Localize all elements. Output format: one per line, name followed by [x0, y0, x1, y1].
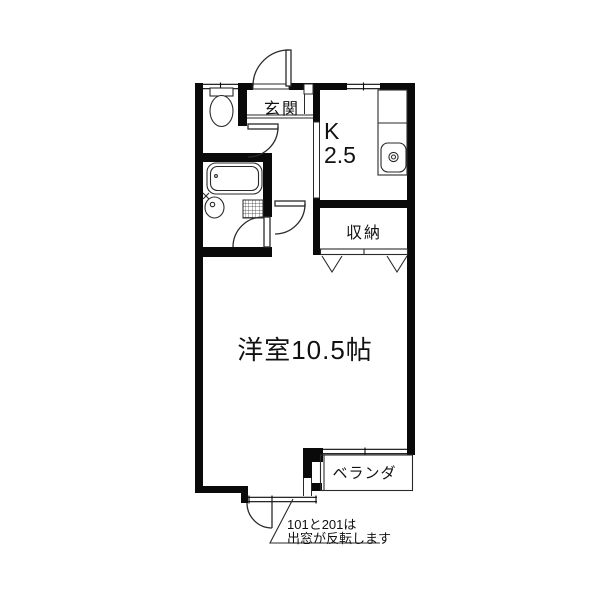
genkan-label: 玄関 [247, 95, 317, 119]
veranda-window [323, 448, 407, 456]
wall-segment [238, 83, 247, 126]
closet-doors [321, 249, 408, 272]
bathroom-door-swing [233, 217, 270, 247]
toilet-door-swing [248, 124, 278, 157]
windows [203, 83, 407, 504]
kitchen-label: K [324, 118, 339, 145]
kitchen-window [347, 83, 380, 91]
floor-plan-drawing [0, 0, 600, 600]
washbasin-icon [203, 193, 224, 218]
note-line2: 出窓が反転します [287, 528, 391, 547]
wall-segment [241, 486, 248, 503]
kitchen-size-label: 2.5 [324, 142, 356, 169]
wall-segment [195, 486, 248, 493]
kitchen-opening [314, 122, 320, 198]
wall-niche [304, 84, 313, 94]
entrance-threshold [253, 84, 289, 89]
washing-machine-pan-icon [243, 200, 263, 218]
wall-segment [407, 83, 415, 455]
storage-label: 収納 [320, 219, 408, 243]
main-room-label: 洋室10.5帖 [195, 330, 415, 367]
floor-plan-page: 玄関 K 2.5 収納 洋室10.5帖 ベランダ 101と201は 出窓が反転し… [0, 0, 600, 600]
wall-segment [313, 200, 415, 208]
kitchen-counter [378, 90, 407, 175]
fixtures [203, 88, 413, 491]
wall-segment [303, 448, 312, 478]
wall-segment [195, 83, 203, 493]
wall-segment [195, 247, 272, 257]
toilet-icon [210, 88, 233, 127]
wall-segment [263, 153, 272, 217]
bathtub-icon [207, 163, 262, 194]
main-room-door-swing [275, 201, 305, 234]
bay-window [248, 496, 317, 504]
openings [247, 84, 320, 496]
veranda-label: ベランダ [321, 462, 408, 483]
entrance-door-swing [253, 50, 291, 86]
bay-casement-swing [247, 503, 272, 528]
